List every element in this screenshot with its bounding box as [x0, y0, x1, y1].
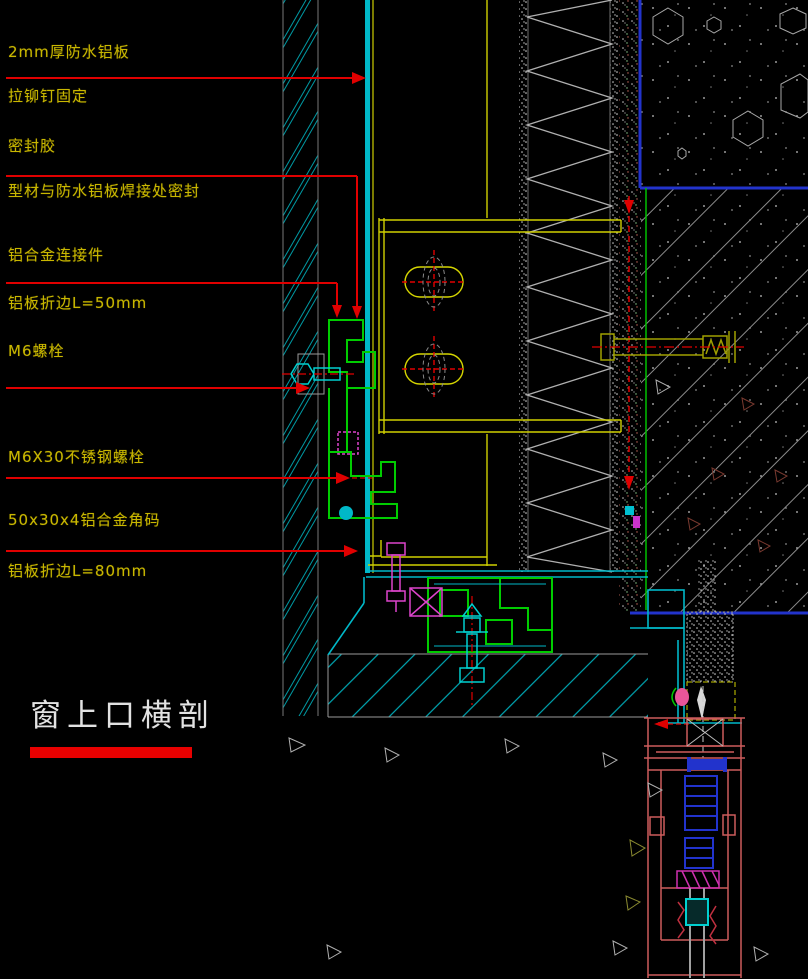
- sealant-teardrop: [697, 686, 706, 720]
- soffit-panel-hatch: [328, 654, 648, 717]
- aluminum-panel-face: [365, 0, 370, 573]
- annotation-rivet-fixing: 拉铆钉固定: [8, 88, 88, 105]
- title-underline: [30, 747, 192, 758]
- insulation-zigzag: [519, 0, 619, 572]
- steel-bracket: [379, 0, 621, 566]
- thermal-break-blue: [685, 757, 727, 868]
- annotation-alloy-connector: 铝合金连接件: [8, 247, 104, 264]
- grout-column: [698, 560, 717, 612]
- wall-panel-hatch-left: [283, 0, 318, 716]
- cad-drawing: [0, 0, 808, 979]
- backer-rod-box: [687, 682, 735, 720]
- sealant-pink: [675, 688, 689, 706]
- annotation-m6x30-bolt: M6X30不锈钢螺栓: [8, 449, 145, 466]
- green-keel-profile: [329, 320, 397, 518]
- cad-canvas: 2mm厚防水铝板 拉铆钉固定 密封胶 型材与防水铝板焊接处密封 铝合金连接件 铝…: [0, 0, 808, 979]
- mortar-block: [687, 612, 733, 682]
- annotation-angle-50x30x4: 50x30x4铝合金角码: [8, 512, 160, 529]
- drawing-title: 窗上口横剖: [30, 690, 215, 735]
- bolt-slot-centerlines: [402, 250, 466, 400]
- face-clip-magenta: [633, 516, 640, 528]
- rivet-magenta: [387, 543, 442, 616]
- gasket-cyan-blob: [339, 506, 353, 520]
- glazing-gasket-magenta: [677, 871, 719, 888]
- glass-unit: [678, 888, 716, 978]
- annotation-fold-80mm: 铝板折边L=80mm: [8, 563, 147, 580]
- face-clip-cyan: [625, 506, 634, 515]
- annotation-sealant: 密封胶: [8, 138, 56, 155]
- masonry-aggregate-zone: [641, 0, 808, 187]
- concrete-wall-hatch: [641, 188, 808, 613]
- annotation-weld-seal: 型材与防水铝板焊接处密封: [8, 183, 200, 200]
- annotation-m6-bolt: M6螺栓: [8, 343, 65, 360]
- window-head-profile: [428, 578, 552, 652]
- annotation-fold-50mm: 铝板折边L=50mm: [8, 295, 147, 312]
- annotation-waterproof-plate: 2mm厚防水铝板: [8, 44, 130, 61]
